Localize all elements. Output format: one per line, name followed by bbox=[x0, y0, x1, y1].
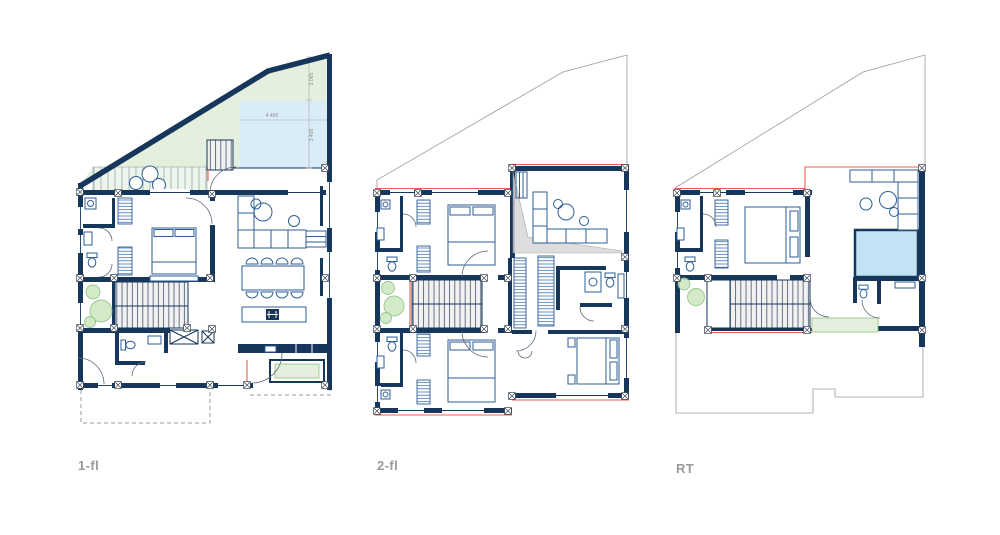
plan-label-rt: RT bbox=[676, 461, 694, 476]
coffee-table bbox=[880, 192, 897, 209]
planter-box bbox=[812, 318, 878, 332]
toilet bbox=[685, 257, 695, 271]
plan-label-1fl: 1-fl bbox=[78, 458, 99, 473]
toilet bbox=[859, 285, 868, 298]
plan-rt-drawing bbox=[0, 0, 1000, 535]
coffee-table bbox=[890, 208, 899, 217]
roof-lounge bbox=[850, 170, 918, 230]
plot-outline-lower bbox=[676, 332, 923, 413]
sofa bbox=[898, 182, 918, 230]
side-table bbox=[860, 198, 872, 210]
roof-wc bbox=[859, 282, 915, 318]
plants bbox=[678, 278, 705, 306]
wardrobe bbox=[715, 240, 728, 268]
pool bbox=[855, 230, 918, 277]
shelf bbox=[895, 282, 915, 288]
stair-landing bbox=[707, 280, 730, 328]
door-arc bbox=[810, 298, 829, 317]
floor-plans-sheet: 2.065 4.400 3.405 bbox=[0, 0, 1000, 535]
wardrobe bbox=[715, 200, 728, 225]
sink bbox=[677, 228, 684, 240]
sofa bbox=[850, 170, 918, 182]
bed bbox=[745, 207, 800, 263]
washer bbox=[681, 200, 690, 209]
plan-label-2fl: 2-fl bbox=[377, 458, 398, 473]
